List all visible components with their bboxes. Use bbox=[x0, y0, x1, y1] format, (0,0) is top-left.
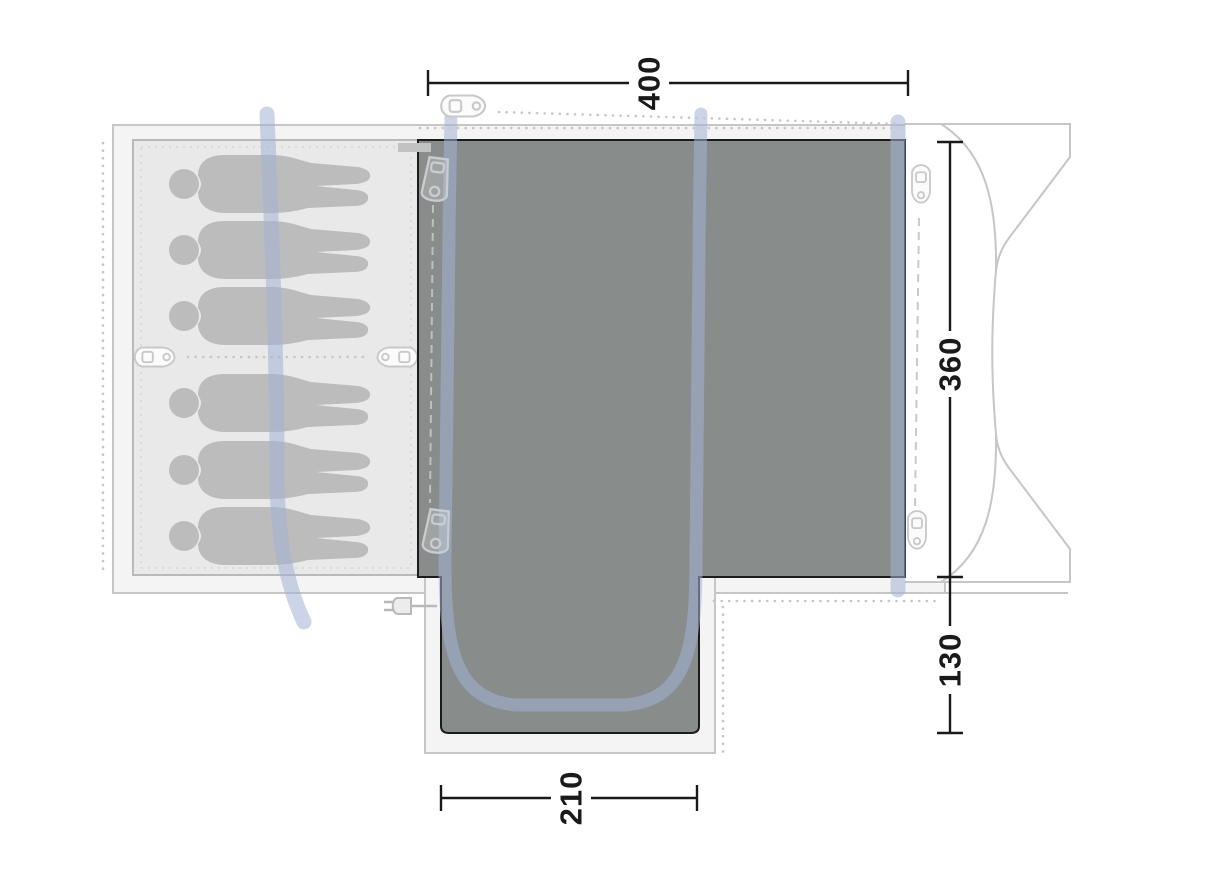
dimension-porch-depth-label: 130 bbox=[933, 633, 968, 688]
dimension-depth-label: 360 bbox=[933, 337, 968, 392]
peg-icon bbox=[908, 511, 926, 549]
dimension-porch-width: 210 bbox=[441, 771, 697, 826]
dimension-width-label: 400 bbox=[632, 56, 667, 111]
connector-bar bbox=[398, 143, 431, 152]
peg-icon bbox=[378, 348, 418, 367]
dimension-width: 400 bbox=[428, 56, 908, 111]
tent-floorplan-diagram: 400 360 130 210 bbox=[0, 0, 1230, 887]
peg-icon bbox=[912, 165, 930, 203]
dimension-porch-width-label: 210 bbox=[554, 771, 589, 826]
floorplan-canvas: 400 360 130 210 bbox=[0, 0, 1230, 887]
groundsheet-living-area bbox=[418, 140, 905, 733]
peg-icon bbox=[441, 96, 485, 117]
dimension-porch-depth: 130 bbox=[933, 577, 968, 733]
peg-icon bbox=[135, 348, 175, 367]
